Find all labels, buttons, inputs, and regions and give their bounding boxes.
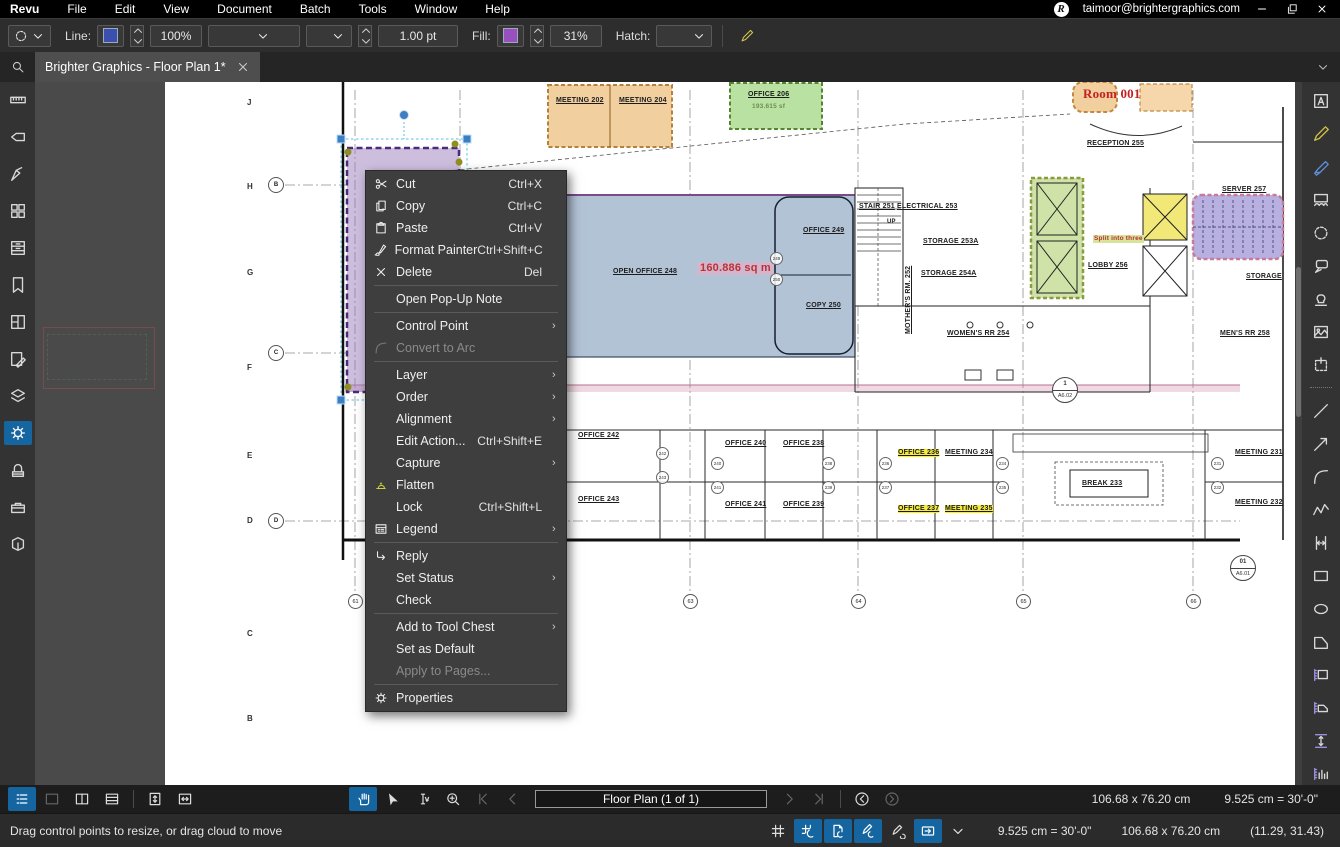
gear-icon: [366, 691, 396, 705]
snap-to-markup-icon: [860, 823, 876, 839]
tab-title: Brighter Graphics - Floor Plan 1*: [45, 60, 226, 74]
status-hint: Drag control points to resize, or drag c…: [10, 824, 282, 838]
ellipse-tool-icon: [1312, 600, 1330, 618]
room-label: OFFICE 238: [783, 440, 824, 448]
menu-separator: [374, 542, 558, 543]
menu-separator: [374, 285, 558, 286]
grid-row-label: J: [247, 98, 251, 107]
snap-to-content[interactable]: [824, 819, 852, 843]
menu-item-apply-to-pages: Apply to Pages...: [366, 660, 566, 682]
submenu-arrow-icon: ›: [552, 391, 566, 403]
menu-item-capture[interactable]: Capture›: [366, 452, 566, 474]
studio-panel-button[interactable]: [4, 458, 32, 482]
pen-icon: [740, 29, 754, 43]
measure-length-tool-button[interactable]: [1307, 731, 1335, 752]
markups-list-toggle-icon: [14, 791, 30, 807]
flags-panel-button[interactable]: [4, 125, 32, 149]
menu-item-format-painter[interactable]: Format PainterCtrl+Shift+C: [366, 239, 566, 261]
next-page-button: [775, 787, 803, 811]
room-label: OFFICE 241: [725, 501, 766, 509]
menu-bar: RevuFileEditViewDocumentBatchToolsWindow…: [0, 2, 524, 16]
tab-list-dropdown[interactable]: [1316, 60, 1340, 74]
divider: [840, 790, 841, 808]
menu-file[interactable]: File: [53, 2, 100, 16]
toolbox-panel-button[interactable]: [4, 495, 32, 519]
room-label: STORAGE 254A: [921, 270, 977, 278]
tool-chest-panel-button[interactable]: [4, 421, 32, 445]
zoom-tool-icon: [445, 791, 461, 807]
menu-item-set-status[interactable]: Set Status›: [366, 567, 566, 589]
markups-list-panel-icon: [9, 350, 27, 368]
floor-plan-drawing: [165, 82, 1295, 785]
document-tab[interactable]: Brighter Graphics - Floor Plan 1*: [35, 52, 260, 82]
line-opacity-value[interactable]: 100%: [150, 25, 202, 47]
door-tag: 236: [879, 457, 892, 470]
grid-bubble: D: [268, 513, 284, 529]
room-label: LOBBY 256: [1088, 262, 1128, 270]
calibration-panel-button[interactable]: [4, 162, 32, 186]
submenu-arrow-icon: ›: [552, 320, 566, 332]
menu-item-label: Open Pop-Up Note: [396, 292, 542, 306]
spaces-panel-button[interactable]: [4, 310, 32, 334]
shape-style-dropdown[interactable]: [8, 25, 51, 47]
grid-bubble: C: [268, 345, 284, 361]
fill-label: Fill:: [472, 29, 491, 43]
image-tool-button[interactable]: [1307, 321, 1335, 342]
menu-item-label: Convert to Arc: [396, 341, 542, 355]
calibration-panel-icon: [9, 165, 27, 183]
submenu-arrow-icon: ›: [552, 369, 566, 381]
last-page-button: [805, 787, 833, 811]
thumbnails-panel-button[interactable]: [4, 199, 32, 223]
arc-tool-icon: [1312, 468, 1330, 486]
stair-up-label: UP: [887, 218, 896, 226]
toolbox-panel-icon: [9, 498, 27, 516]
line-tool-icon: [1312, 402, 1330, 420]
room-label: RECEPTION 255: [1087, 140, 1144, 148]
tool-chest-panel-icon: [9, 424, 27, 442]
menu-shortcut: Del: [524, 265, 552, 279]
column-bubble: 61: [348, 594, 363, 609]
drawing-canvas[interactable]: MEETING 202 MEETING 204 OFFICE 206 193.6…: [165, 82, 1295, 785]
menu-item-label: Alignment: [396, 412, 542, 426]
menu-item-copy[interactable]: CopyCtrl+C: [366, 195, 566, 217]
line-tool-button[interactable]: [1307, 400, 1335, 421]
split-vertical[interactable]: [68, 787, 96, 811]
arrow-tool-icon: [1312, 435, 1330, 453]
column-bubble: 64: [851, 594, 866, 609]
menu-item-lock[interactable]: LockCtrl+Shift+L: [366, 496, 566, 518]
sync-options[interactable]: [944, 819, 972, 843]
highlighter-tool-icon: [1312, 158, 1330, 176]
single-pane-icon: [44, 791, 60, 807]
ellipse-tool-button[interactable]: [1307, 599, 1335, 620]
menu-view[interactable]: View: [149, 2, 203, 16]
room-label: OFFICE 249: [803, 227, 844, 235]
layers-panel-button[interactable]: [4, 384, 32, 408]
scrollbar-thumb[interactable]: [1296, 267, 1301, 417]
stroke-width-value[interactable]: 1.00 pt: [378, 25, 458, 47]
search-button[interactable]: [0, 60, 35, 74]
stroke-width-stepper[interactable]: [358, 25, 372, 47]
navigation-bar: Floor Plan (1 of 1) 106.68 x 76.20 cm 9.…: [0, 785, 1340, 813]
stamp-tool-icon: [1312, 290, 1330, 308]
detail-callout: 1A6.02: [1052, 377, 1078, 403]
menu-help[interactable]: Help: [471, 2, 524, 16]
bookmarks-panel-button[interactable]: [4, 273, 32, 297]
menu-item-label: Cut: [396, 177, 508, 191]
menu-item-label: Lock: [396, 500, 479, 514]
menu-item-label: Format Painter: [395, 243, 478, 257]
file-access-panel-icon: [9, 239, 27, 257]
synchronize-views-icon: [920, 823, 936, 839]
room-label: MEETING 204: [619, 97, 667, 105]
menu-item-reply[interactable]: Reply: [366, 545, 566, 567]
door-tag: 238: [822, 457, 835, 470]
text-tool-button[interactable]: [1307, 90, 1335, 111]
measure-rectangle-tool-icon: [1312, 666, 1330, 684]
menu-item-control-point[interactable]: Control Point›: [366, 315, 566, 337]
left-panel-bar: [0, 82, 35, 785]
collapsed-panel: [35, 82, 165, 785]
door-tag: 242: [656, 447, 669, 460]
measurements-panel-icon: [9, 91, 27, 109]
cloud-line-style-icon: [239, 29, 253, 43]
menu-separator: [374, 312, 558, 313]
submenu-arrow-icon: ›: [552, 523, 566, 535]
fit-width[interactable]: [171, 787, 199, 811]
divider: [1310, 387, 1332, 388]
menu-document[interactable]: Document: [203, 2, 286, 16]
grid-toggle[interactable]: [764, 819, 792, 843]
minimize-button[interactable]: [1254, 2, 1270, 16]
menu-item-label: Reply: [396, 549, 542, 563]
grid-bubble: B: [268, 177, 284, 193]
snap-to-grid-icon: [800, 823, 816, 839]
search-icon: [11, 60, 25, 74]
menu-shortcut: Ctrl+Shift+C: [477, 243, 552, 257]
single-pane: [38, 787, 66, 811]
last-page-button-icon: [811, 791, 827, 807]
menu-edit[interactable]: Edit: [101, 2, 150, 16]
next-view-button: [878, 787, 906, 811]
polyline-tool-button[interactable]: [1307, 500, 1335, 521]
synchronize-views[interactable]: [914, 819, 942, 843]
previous-view-button-icon: [854, 791, 870, 807]
menu-tools[interactable]: Tools: [345, 2, 401, 16]
hatch-label: Hatch:: [616, 29, 651, 43]
layers-panel-icon: [9, 387, 27, 405]
menu-item-check[interactable]: Check: [366, 589, 566, 611]
fill-opacity-value[interactable]: 31%: [550, 25, 602, 47]
menu-separator: [374, 613, 558, 614]
menu-item-cut[interactable]: CutCtrl+X: [366, 173, 566, 195]
properties-toolbar: Line: 100% 1.00 pt Fill: 31% Hatch:: [0, 18, 1340, 52]
menu-item-label: Set as Default: [396, 642, 542, 656]
room-label: OFFICE 239: [783, 501, 824, 509]
room-label: STORAGE 253A: [923, 238, 979, 246]
polygon-tool-icon: [1312, 633, 1330, 651]
room-label-highlighted: OFFICE 236: [898, 449, 939, 457]
dimension-tool-icon: [1312, 534, 1330, 552]
stamp-tool-button[interactable]: [1307, 288, 1335, 309]
xmark-icon: [366, 265, 396, 279]
room-label: WOMEN'S RR 254: [947, 330, 1009, 338]
reply-icon: [366, 549, 396, 563]
select-text-tool[interactable]: [409, 787, 437, 811]
menu-item-order[interactable]: Order›: [366, 386, 566, 408]
callout-tool-icon: [1312, 257, 1330, 275]
room-label: BREAK 233: [1082, 480, 1122, 488]
file-access-panel-button[interactable]: [4, 236, 32, 260]
submenu-arrow-icon: ›: [552, 413, 566, 425]
menu-item-legend[interactable]: Legend›: [366, 518, 566, 540]
first-page-button-icon: [475, 791, 491, 807]
menu-item-label: Properties: [396, 691, 542, 705]
scale-readout: 9.525 cm = 30'-0": [1224, 792, 1318, 806]
menu-batch[interactable]: Batch: [286, 2, 345, 16]
next-page-button-icon: [781, 791, 797, 807]
spaces-panel-icon: [9, 313, 27, 331]
door-tag: 249: [770, 252, 783, 265]
restore-button[interactable]: [1284, 2, 1300, 16]
detail-callout: 01A6.01: [1230, 555, 1256, 581]
menu-item-label: Control Point: [396, 319, 542, 333]
page-navigator[interactable]: Floor Plan (1 of 1): [535, 790, 767, 808]
3d-model-panel-button[interactable]: [4, 532, 32, 556]
room-label: COPY 250: [806, 302, 841, 310]
menu-shortcut: Ctrl+V: [508, 221, 552, 235]
measure-rectangle-tool-button[interactable]: [1307, 665, 1335, 686]
title-bar: RevuFileEditViewDocumentBatchToolsWindow…: [0, 0, 1340, 18]
room-label: OPEN OFFICE 248: [613, 268, 677, 276]
line-label: Line:: [65, 29, 91, 43]
menu-item-paste[interactable]: PasteCtrl+V: [366, 217, 566, 239]
menu-item-delete[interactable]: DeleteDel: [366, 261, 566, 283]
measure-count-tool-icon: [1312, 765, 1330, 783]
room-001-label: Room 001: [1083, 87, 1141, 101]
room-label: MOTHER'S RM. 252: [905, 266, 913, 334]
menu-item-flatten[interactable]: Flatten: [366, 474, 566, 496]
cursor-coordinates: (11.29, 31.43): [1250, 824, 1324, 838]
bookmarks-panel-icon: [9, 276, 27, 294]
flatten-icon: [366, 478, 396, 492]
menu-item-open-pop-up-note[interactable]: Open Pop-Up Note: [366, 288, 566, 310]
revu-logo-icon: R: [1054, 2, 1069, 17]
pen-tool-icon: [1312, 125, 1330, 143]
menu-shortcut: Ctrl+Shift+E: [477, 434, 552, 448]
grid-row-label: G: [247, 268, 253, 277]
status-scale: 9.525 cm = 30'-0": [998, 824, 1092, 838]
chevron-down-icon: [1316, 60, 1330, 74]
menu-item-label: Add to Tool Chest: [396, 620, 542, 634]
split-horizontal[interactable]: [98, 787, 126, 811]
arrow-tool-button[interactable]: [1307, 433, 1335, 454]
menu-item-label: Check: [396, 593, 542, 607]
line-color-picker[interactable]: [97, 25, 124, 47]
thumbnails-panel-icon: [9, 202, 27, 220]
arc-icon: [366, 341, 396, 355]
grid-row-label: C: [247, 629, 253, 638]
measure-area-tool-icon: [1312, 699, 1330, 717]
snap-to-markup[interactable]: [854, 819, 882, 843]
column-bubble: 65: [1016, 594, 1031, 609]
room-label: MEETING 234: [945, 449, 993, 457]
arc-tool-button[interactable]: [1307, 467, 1335, 488]
measure-length-tool-icon: [1312, 732, 1330, 750]
menu-item-label: Legend: [396, 522, 542, 536]
callout-tool-button[interactable]: [1307, 255, 1335, 276]
column-bubble: 66: [1186, 594, 1201, 609]
dimension-tool-button[interactable]: [1307, 533, 1335, 554]
menu-window[interactable]: Window: [401, 2, 472, 16]
highlighter-tool-button[interactable]: [1307, 156, 1335, 177]
menu-shortcut: Ctrl+X: [508, 177, 552, 191]
sync-options-icon: [950, 823, 966, 839]
menu-item-add-to-tool-chest[interactable]: Add to Tool Chest›: [366, 616, 566, 638]
measure-count-tool-button[interactable]: [1307, 764, 1335, 785]
room-label: OFFICE 240: [725, 440, 766, 448]
door-tag: 237: [879, 481, 892, 494]
cloud-tool-icon: [1312, 224, 1330, 242]
hatch-dropdown[interactable]: [656, 25, 712, 47]
pan-tool[interactable]: [349, 787, 377, 811]
split-vertical-icon: [74, 791, 90, 807]
room-label-highlighted: MEETING 235: [945, 505, 993, 513]
account-email: taimoor@brightergraphics.com: [1083, 3, 1240, 15]
select-tool[interactable]: [379, 787, 407, 811]
menu-item-set-as-default[interactable]: Set as Default: [366, 638, 566, 660]
door-tag: 240: [711, 457, 724, 470]
menu-item-properties[interactable]: Properties: [366, 687, 566, 709]
fit-width-icon: [177, 791, 193, 807]
context-menu: CutCtrl+XCopyCtrl+CPasteCtrl+VFormat Pai…: [365, 170, 567, 712]
door-tag: 239: [822, 481, 835, 494]
pen-input-toggle[interactable]: [884, 819, 912, 843]
line-style-dropdown[interactable]: [208, 25, 300, 47]
line-color-swatch: [103, 28, 118, 43]
measurements-panel-button[interactable]: [4, 88, 32, 112]
fill-color-picker[interactable]: [497, 25, 524, 47]
polyline-tool-icon: [1312, 501, 1330, 519]
room-label: OFFICE 242: [578, 432, 619, 440]
cloud-rect-tool-button[interactable]: [1307, 189, 1335, 210]
door-tag: 232: [1211, 481, 1224, 494]
divider: [133, 790, 134, 808]
markups-list-panel-button[interactable]: [4, 347, 32, 371]
copy-icon: [366, 199, 396, 213]
markups-list-toggle[interactable]: [8, 787, 36, 811]
rectangle-tool-icon: [1312, 567, 1330, 585]
cloud-shape-icon: [14, 29, 28, 43]
menu-item-label: Copy: [396, 199, 508, 213]
cloud-tool-button[interactable]: [1307, 222, 1335, 243]
line-opacity-stepper[interactable]: [130, 25, 144, 47]
menu-item-alignment[interactable]: Alignment›: [366, 408, 566, 430]
brush-icon: [366, 243, 395, 257]
grid-row-label: D: [247, 516, 253, 525]
chevron-down-icon: [31, 29, 45, 43]
grid-toggle-icon: [770, 823, 786, 839]
menu-separator: [374, 684, 558, 685]
previous-view-button[interactable]: [848, 787, 876, 811]
door-tag: 243: [656, 471, 669, 484]
polygon-tool-button[interactable]: [1307, 632, 1335, 653]
door-tag: 234: [996, 457, 1009, 470]
page-size-readout: 106.68 x 76.20 cm: [1092, 792, 1191, 806]
pen-mode-button[interactable]: [733, 24, 761, 48]
menu-item-convert-to-arc: Convert to Arc: [366, 337, 566, 359]
split-note-label[interactable]: Split into three: [1093, 235, 1144, 243]
status-bar: Drag control points to resize, or drag c…: [0, 813, 1340, 847]
grid-row-label: F: [247, 363, 252, 372]
menu-item-label: Apply to Pages...: [396, 664, 542, 678]
menu-item-label: Delete: [396, 265, 524, 279]
measure-area-tool-button[interactable]: [1307, 698, 1335, 719]
vertical-scrollbar[interactable]: [1295, 82, 1302, 785]
rectangle-tool-button[interactable]: [1307, 566, 1335, 587]
paste-icon: [366, 221, 396, 235]
previous-page-button-icon: [505, 791, 521, 807]
snap-to-content-icon: [830, 823, 846, 839]
cloud-style-dropdown[interactable]: [306, 25, 352, 47]
markup-tools-bar: [1302, 82, 1340, 785]
image-tool-icon: [1312, 323, 1330, 341]
menu-item-edit-action[interactable]: Edit Action...Ctrl+Shift+E: [366, 430, 566, 452]
fill-color-swatch: [503, 28, 518, 43]
area-label: 193.615 sf: [752, 103, 785, 111]
studio-panel-icon: [9, 461, 27, 479]
menu-item-label: Paste: [396, 221, 508, 235]
fit-page[interactable]: [141, 787, 169, 811]
menu-item-layer[interactable]: Layer›: [366, 364, 566, 386]
snap-to-grid[interactable]: [794, 819, 822, 843]
pen-tool-button[interactable]: [1307, 123, 1335, 144]
text-tool-icon: [1312, 92, 1330, 110]
room-label: ELECTRICAL 253: [897, 203, 958, 211]
grid-row-label: H: [247, 182, 253, 191]
cloud-pattern-icon: [314, 29, 328, 43]
split-horizontal-icon: [104, 791, 120, 807]
room-label: OFFICE 243: [578, 496, 619, 504]
snapshot-tool-button[interactable]: [1307, 354, 1335, 375]
menu-item-label: Capture: [396, 456, 542, 470]
submenu-arrow-icon: ›: [552, 457, 566, 469]
legend-icon: [366, 522, 396, 536]
previous-page-button: [499, 787, 527, 811]
room-label: MEETING 232: [1235, 499, 1283, 507]
room-label-highlighted: OFFICE 237: [898, 505, 939, 513]
fill-opacity-stepper[interactable]: [530, 25, 544, 47]
menu-revu[interactable]: Revu: [0, 2, 53, 16]
close-button[interactable]: [1314, 2, 1330, 16]
room-label: STAIR 251: [859, 203, 895, 211]
next-view-button-icon: [884, 791, 900, 807]
zoom-tool[interactable]: [439, 787, 467, 811]
first-page-button: [469, 787, 497, 811]
menu-item-label: Order: [396, 390, 542, 404]
submenu-arrow-icon: ›: [552, 621, 566, 633]
select-text-tool-icon: [415, 791, 431, 807]
snapshot-tool-icon: [1312, 356, 1330, 374]
select-tool-icon: [385, 791, 401, 807]
area-measurement-label[interactable]: 160.886 sq m: [697, 262, 774, 275]
menu-shortcut: Ctrl+C: [508, 199, 552, 213]
room-label: STORAGE: [1246, 273, 1282, 281]
document-tab-bar: Brighter Graphics - Floor Plan 1*: [0, 52, 1340, 82]
pen-input-toggle-icon: [890, 823, 906, 839]
tab-close-icon[interactable]: [236, 60, 250, 74]
